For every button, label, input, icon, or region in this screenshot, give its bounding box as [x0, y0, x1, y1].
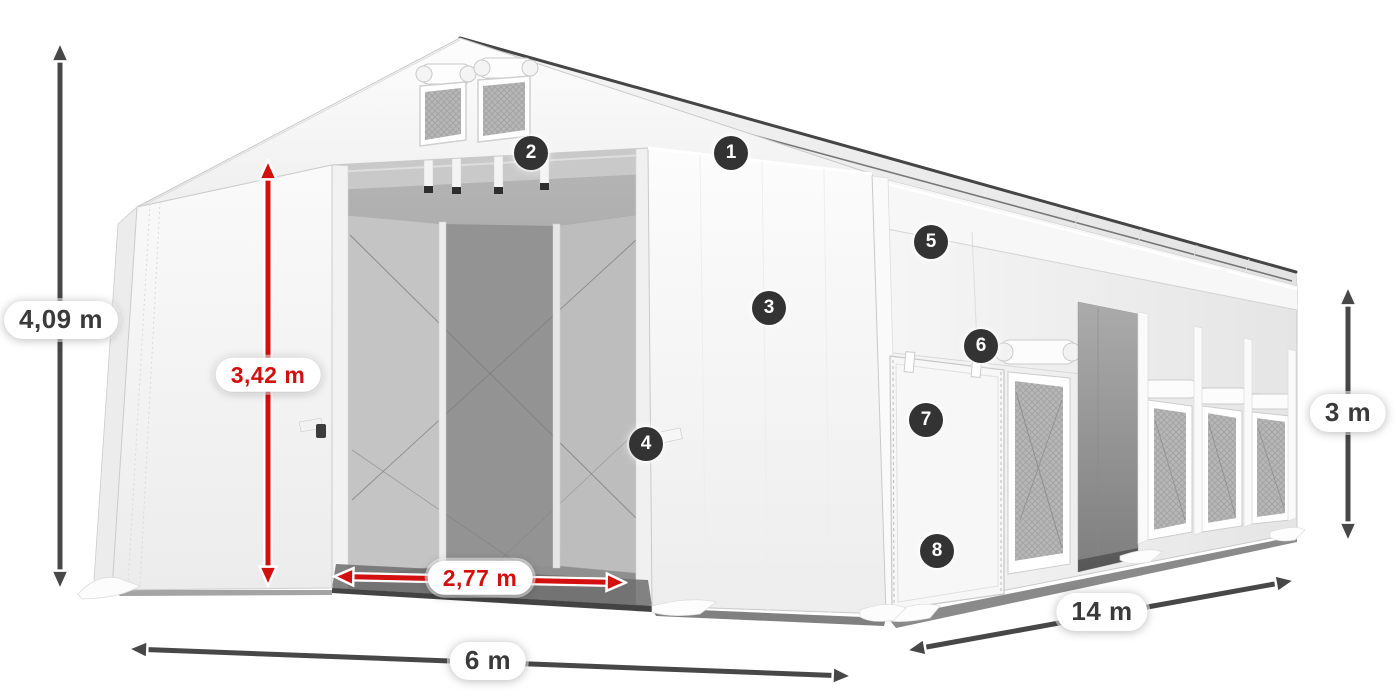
- ground-shadow-left: [112, 590, 332, 596]
- callout-3[interactable]: 3: [752, 291, 786, 325]
- dimension-label-length: 14 m: [1056, 593, 1147, 631]
- door-handle: [316, 424, 326, 438]
- callout-5[interactable]: 5: [914, 225, 948, 259]
- frame-post: [439, 222, 446, 568]
- callout-2[interactable]: 2: [514, 136, 548, 170]
- callout-8[interactable]: 8: [920, 534, 954, 568]
- dimension-label-door-height: 3,42 m: [216, 358, 321, 392]
- window-roll: [1248, 394, 1294, 409]
- side-entrance-opening: [1078, 302, 1138, 572]
- inner-door-leaf-left: [338, 215, 442, 578]
- gable-vent-window-2: [474, 58, 538, 142]
- callout-7[interactable]: 7: [909, 403, 943, 437]
- callout-1[interactable]: 1: [714, 136, 748, 170]
- dimension-label-width: 6 m: [450, 642, 526, 680]
- tent-dimensions-diagram: 4,09 m 3,42 m 2,77 m 6 m 14 m 3 m 1 2 3 …: [0, 0, 1400, 700]
- callout-6[interactable]: 6: [964, 329, 998, 363]
- inner-door-leaf-right: [556, 214, 646, 574]
- side-door-panel: [890, 352, 1004, 610]
- frame-post: [553, 224, 560, 568]
- window-roll: [1142, 380, 1198, 398]
- door-tab: [904, 352, 915, 373]
- dimension-label-side-height: 3 m: [1310, 394, 1386, 432]
- dimension-label-total-height: 4,09 m: [4, 301, 118, 339]
- window-roll: [1198, 388, 1248, 404]
- tent-interior: [332, 148, 652, 612]
- tent-illustration-canvas: [0, 0, 1400, 700]
- dimension-label-door-width: 2,77 m: [428, 561, 533, 595]
- door-post-left: [332, 165, 348, 588]
- front-right-door-leaf: [648, 148, 906, 626]
- callout-4[interactable]: 4: [629, 427, 663, 461]
